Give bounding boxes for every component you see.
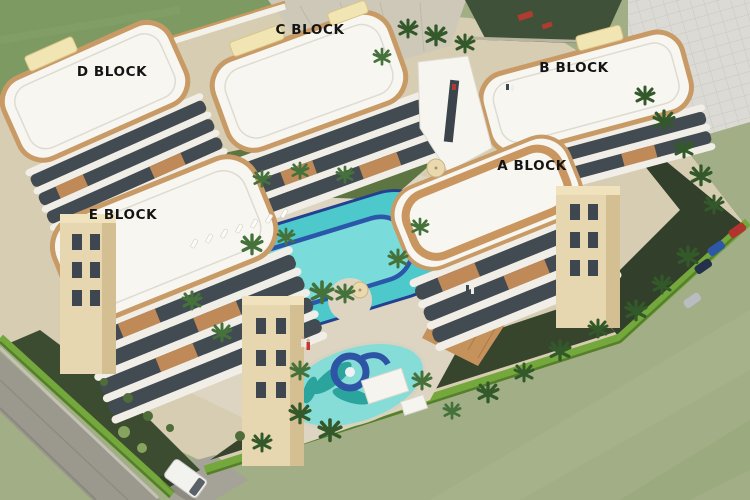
block-label-a: A BLOCK xyxy=(497,158,567,174)
render-canvas: C BLOCK D BLOCK B BLOCK A BLOCK E BLOCK xyxy=(0,0,750,500)
block-e-tower-left xyxy=(60,214,116,374)
block-label-c: C BLOCK xyxy=(275,22,344,38)
block-a-tower xyxy=(556,186,620,328)
block-e-tower-right xyxy=(242,296,304,466)
block-label-b: B BLOCK xyxy=(539,60,608,76)
block-label-d: D BLOCK xyxy=(77,64,147,80)
block-label-e: E BLOCK xyxy=(89,207,157,223)
architectural-render: C BLOCK D BLOCK B BLOCK A BLOCK E BLOCK xyxy=(0,0,750,500)
